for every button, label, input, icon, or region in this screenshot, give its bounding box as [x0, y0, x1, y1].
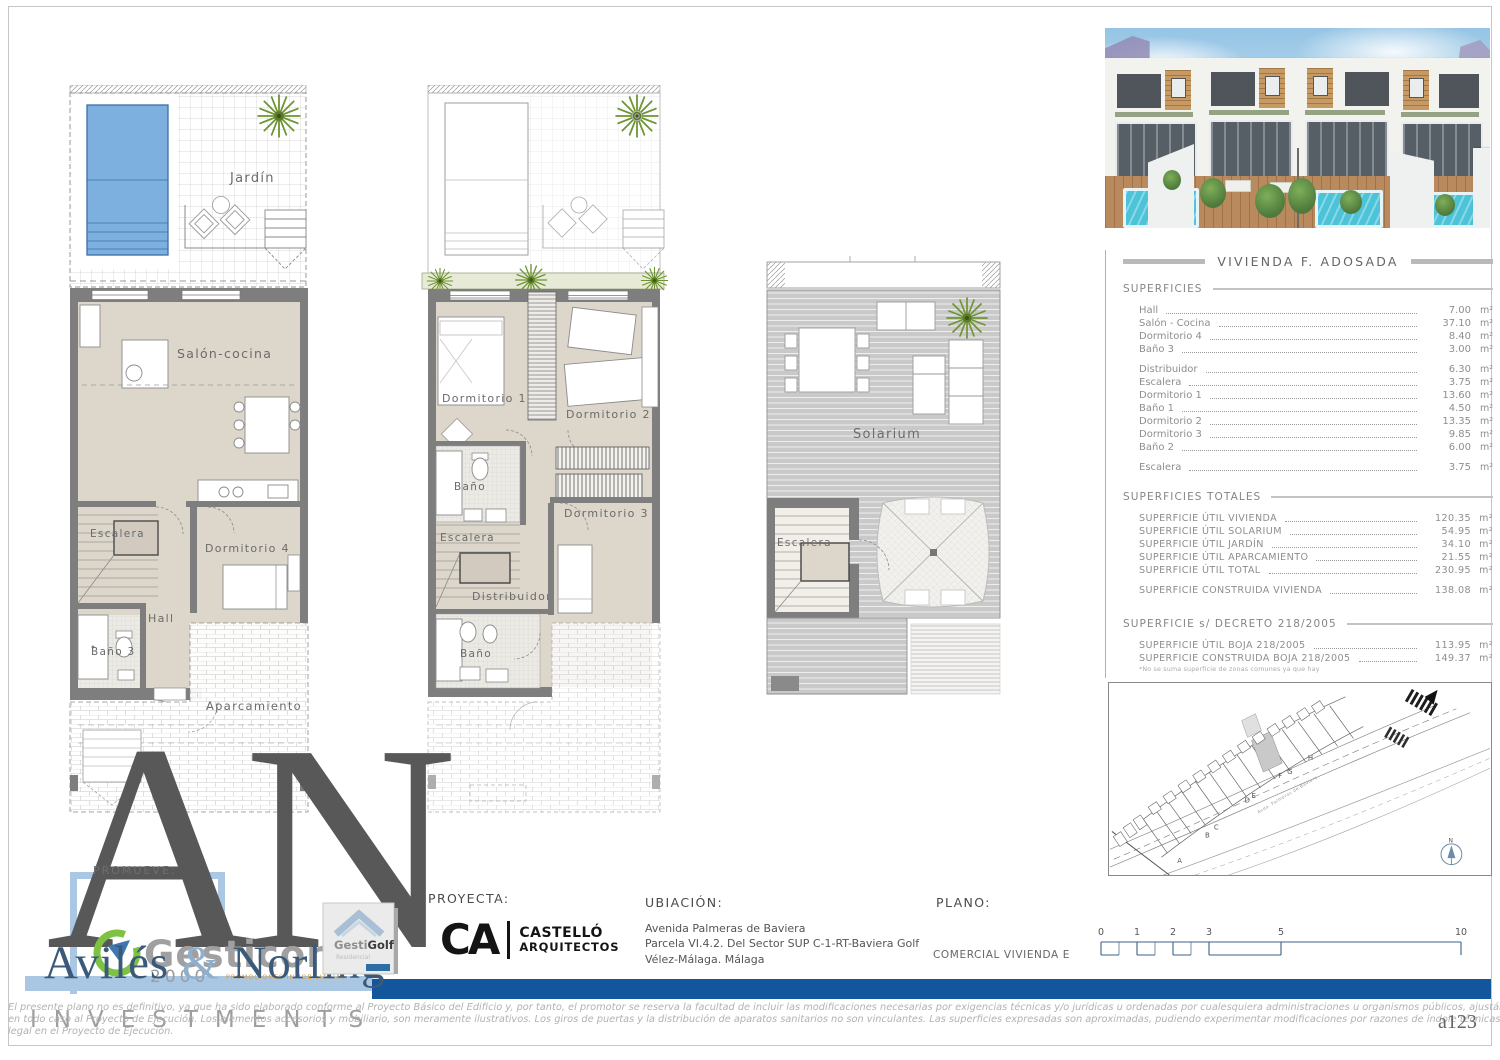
room-label-escalera1: Escalera	[440, 532, 495, 544]
footer-brand-bar	[372, 979, 1491, 999]
room-label-salon: Salón-cocina	[177, 346, 272, 361]
panel-title: VIVIENDA F. ADOSADA	[1217, 254, 1398, 269]
section-header: SUPERFICIES TOTALES	[1123, 491, 1261, 503]
floorplan-first: Dormitorio 1 Dormitorio 2 Baño Escale	[420, 85, 705, 820]
garden-ghost	[428, 93, 664, 281]
wardrobe	[556, 474, 642, 498]
stair-void	[528, 292, 556, 420]
area-row: Dormitorio 113.60m²	[1139, 388, 1493, 401]
room-label-bano3: Baño 3	[91, 646, 136, 658]
area-row: SUPERFICIE ÚTIL SOLARIUM54.95m²	[1139, 524, 1493, 537]
area-row: Baño 14.50m²	[1139, 401, 1493, 414]
svg-text:3: 3	[1206, 927, 1212, 938]
pergola	[877, 497, 989, 607]
title-bar-right	[1411, 259, 1493, 264]
area-row: Dormitorio 213.35m²	[1139, 414, 1493, 427]
svg-text:E: E	[1252, 792, 1256, 800]
decreto-footnote: *No se suma superficie de zonas comunes …	[1139, 666, 1493, 673]
disclaimer-line: en todo caso al Proyecto de Ejecución. L…	[8, 1014, 1500, 1025]
svg-text:C: C	[1214, 823, 1219, 831]
svg-text:D: D	[1245, 797, 1250, 805]
plano-value: COMERCIAL VIVIENDA E	[933, 949, 1070, 961]
svg-text:5: 5	[1278, 927, 1284, 938]
promueve-label: PROMUEVE:	[93, 864, 177, 877]
room-label-jardin: Jardín	[229, 171, 275, 186]
plot-letters: A B C D E F G H	[1177, 754, 1313, 865]
area-row: Dormitorio 48.40m²	[1139, 329, 1493, 342]
plant-icon	[258, 95, 300, 137]
room-label-bano-inf: Baño	[460, 648, 492, 660]
bano3-group: Baño 3	[78, 615, 140, 688]
site-address: Avenida Palmeras de Baviera Parcela VI.4…	[645, 921, 919, 967]
ubicacion-label: UBIACIÓN:	[645, 895, 723, 910]
area-row: Baño 33.00m²	[1139, 342, 1493, 355]
room-label-escalera: Escalera	[90, 528, 145, 540]
areas-panel: VIVIENDA F. ADOSADA SUPERFICIES Hall7.00…	[1105, 250, 1493, 678]
floorplan-solarium: Solarium Escalera	[755, 248, 1047, 718]
logo-divider	[507, 921, 510, 959]
room-label-distribuidor: Distribuidor	[472, 590, 552, 603]
gestigolf-name: GestiGolf	[334, 938, 395, 952]
garden-area: Jardín	[70, 93, 306, 287]
room-label-dormitorio1: Dormitorio 1	[442, 392, 527, 405]
room-label-dormitorio4: Dormitorio 4	[205, 542, 290, 555]
room-label-dormitorio3: Dormitorio 3	[564, 507, 649, 520]
area-row: SUPERFICIE ÚTIL VIVIENDA120.35m²	[1139, 511, 1493, 524]
architectural-plan-sheet: Jardín Salón-cocina	[0, 0, 1500, 1060]
castello-arquitectos-logo: CA CASTELLÓ ARQUITECTOS	[440, 919, 619, 961]
area-row: Distribuidor6.30m²	[1139, 362, 1493, 375]
room-label-bano-sup: Baño	[454, 481, 486, 493]
area-row: SUPERFICIE CONSTRUIDA BOJA 218/2005149.3…	[1139, 651, 1493, 664]
svg-text:1: 1	[1134, 927, 1140, 938]
room-label-escalera-roof: Escalera	[777, 537, 832, 549]
area-row: Escalera3.75m²	[1139, 460, 1493, 473]
room-label-dormitorio2: Dormitorio 2	[566, 408, 651, 421]
svg-text:A: A	[1177, 857, 1182, 865]
bano-inferior-group: Baño	[430, 609, 548, 688]
gestigolf-logo: GestiGolf Residencial	[322, 902, 398, 978]
area-row: Escalera3.75m²	[1139, 375, 1493, 388]
architect-monogram: CA	[440, 919, 497, 961]
ghost-structure	[911, 624, 1000, 694]
title-bar-left	[1123, 259, 1205, 264]
site-location-plan: A B C D E F G H Avda. Palmeras de Bavier…	[1108, 682, 1492, 876]
sheet-code: a123	[1438, 1011, 1477, 1034]
back-patios	[1113, 701, 1324, 847]
street-name: Avda. Palmeras de Baviera	[1256, 775, 1318, 816]
svg-text:N: N	[1448, 837, 1452, 844]
section-header: SUPERFICIE s/ DECRETO 218/2005	[1123, 618, 1337, 630]
render-privacy-wall	[1473, 148, 1490, 228]
top-band	[767, 256, 1000, 288]
architect-name: ARQUITECTOS	[519, 941, 619, 954]
disclaimer-line: El presente plano no es definitivo, ya q…	[8, 1002, 1500, 1013]
project-render-photo	[1105, 28, 1490, 228]
svg-text:10: 10	[1455, 927, 1467, 938]
area-row: SUPERFICIE ÚTIL TOTAL230.95m²	[1139, 563, 1493, 576]
plant-icon	[947, 298, 987, 338]
svg-text:B: B	[1205, 831, 1210, 839]
area-row: Dormitorio 39.85m²	[1139, 427, 1493, 440]
area-row: SUPERFICIE ÚTIL JARDÍN34.10m²	[1139, 537, 1493, 550]
svg-text:H: H	[1308, 754, 1313, 762]
arrow-marker	[1425, 690, 1438, 705]
section-header: SUPERFICIES	[1123, 283, 1203, 295]
disclaimer-line: legal en el Proyecto de Ejecución.	[8, 1026, 173, 1037]
svg-text:G: G	[1287, 768, 1292, 776]
svg-text:2: 2	[1170, 927, 1176, 938]
room-label-solarium: Solarium	[853, 427, 921, 442]
architect-name: CASTELLÓ	[519, 925, 619, 941]
area-row: Baño 26.00m²	[1139, 440, 1493, 453]
area-row: SUPERFICIE ÚTIL APARCAMIENTO21.55m²	[1139, 550, 1493, 563]
wardrobe	[556, 447, 649, 469]
area-row: Salón - Cocina37.10m²	[1139, 316, 1493, 329]
svg-text:F: F	[1278, 772, 1282, 780]
scale-bar: 0 1 2 3 5 10	[1093, 922, 1473, 964]
plant-icon	[616, 95, 658, 137]
plano-label: PLANO:	[936, 895, 991, 910]
area-row: SUPERFICIE CONSTRUIDA VIVIENDA138.08m²	[1139, 583, 1493, 596]
bano-superior-group: Baño	[436, 441, 526, 525]
north-compass-icon: N	[1441, 837, 1462, 865]
area-row: Hall7.00m²	[1139, 303, 1493, 316]
section-decreto: SUPERFICIE s/ DECRETO 218/2005 SUPERFICI…	[1123, 618, 1493, 673]
section-superficies-totales: SUPERFICIES TOTALES SUPERFICIE ÚTIL VIVI…	[1123, 491, 1493, 596]
svg-text:0: 0	[1098, 927, 1104, 938]
section-superficies: SUPERFICIES Hall7.00m² Salón - Cocina37.…	[1123, 283, 1493, 473]
gestigolf-sub: Residencial	[336, 954, 370, 961]
area-row: SUPERFICIE ÚTIL BOJA 218/2005113.95m²	[1139, 638, 1493, 651]
room-label-hall: Hall	[148, 612, 174, 625]
